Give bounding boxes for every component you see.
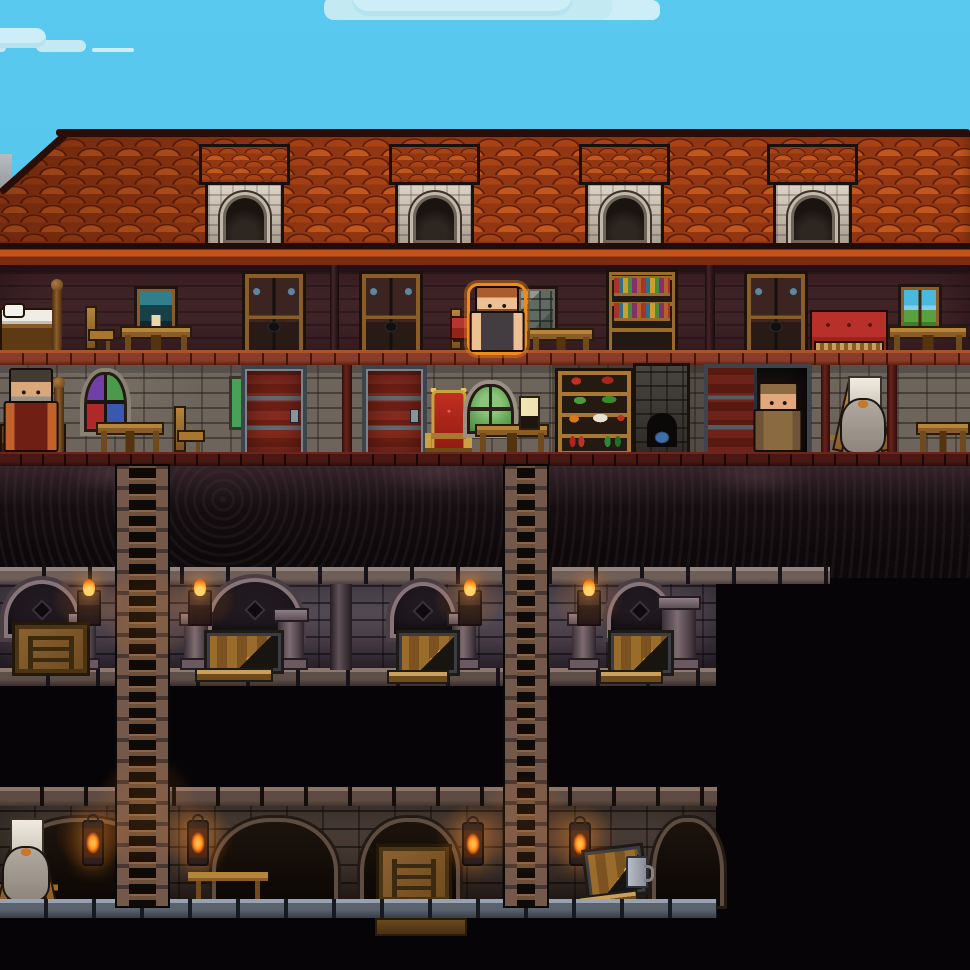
post-ground-2 bbox=[821, 365, 830, 452]
hatch-below-floor bbox=[375, 918, 467, 936]
floor-band-upper bbox=[0, 350, 970, 365]
chair-ground-1[interactable] bbox=[174, 406, 205, 452]
torch-2[interactable] bbox=[188, 590, 212, 626]
chest-1[interactable] bbox=[204, 630, 284, 674]
torch-4[interactable] bbox=[577, 590, 601, 626]
dormer-window-3 bbox=[585, 180, 664, 249]
post-ground-1 bbox=[342, 365, 352, 452]
mug[interactable] bbox=[626, 856, 648, 888]
game-world-view bbox=[0, 0, 970, 970]
table-upper-2[interactable] bbox=[888, 326, 968, 350]
dwarf-painter[interactable] bbox=[840, 398, 886, 454]
torch-1[interactable] bbox=[77, 590, 101, 626]
table-ground-3[interactable] bbox=[916, 422, 970, 452]
sofa-red[interactable] bbox=[810, 310, 888, 354]
ladder-shaft-1[interactable] bbox=[117, 466, 168, 906]
dormer-window-1 bbox=[205, 180, 284, 249]
dormer-window-2 bbox=[395, 180, 474, 249]
lantern-2[interactable] bbox=[187, 820, 209, 866]
wall-seam-cellar1 bbox=[330, 584, 352, 670]
table-upper-1[interactable] bbox=[120, 326, 192, 350]
ladder-shaft-2[interactable] bbox=[505, 466, 547, 906]
bookshelf-upper[interactable] bbox=[606, 269, 678, 357]
roof-ridge bbox=[56, 129, 970, 136]
bench-upper[interactable] bbox=[528, 328, 594, 350]
dwarf-sleeping[interactable] bbox=[4, 368, 58, 452]
cloud-small-left bbox=[0, 28, 46, 48]
lantern-3[interactable] bbox=[462, 822, 484, 866]
wardrobe-upper-1[interactable] bbox=[242, 271, 306, 357]
throne[interactable] bbox=[425, 388, 472, 452]
chest-2[interactable] bbox=[396, 630, 460, 676]
bed-upper[interactable] bbox=[0, 308, 60, 354]
door-reinforced-2[interactable] bbox=[362, 365, 427, 460]
eave-band bbox=[0, 243, 970, 265]
table-ground-1[interactable] bbox=[96, 422, 164, 452]
door-reinforced-1[interactable] bbox=[241, 365, 307, 460]
alcove-ladder-hatch[interactable] bbox=[376, 844, 452, 904]
candle bbox=[519, 396, 540, 430]
bedpost-upper bbox=[52, 288, 62, 350]
figure-at-easel[interactable] bbox=[2, 846, 50, 902]
pantry-shelf[interactable] bbox=[555, 368, 634, 458]
dwarf-reading[interactable] bbox=[470, 286, 524, 352]
bench-cellar2[interactable] bbox=[188, 872, 268, 900]
cellar2-ceiling bbox=[0, 787, 717, 806]
post-upper-1 bbox=[330, 265, 339, 350]
floor-band-ground bbox=[0, 452, 970, 466]
cloud-top bbox=[352, 0, 572, 16]
post-upper-2 bbox=[705, 265, 715, 350]
furnace[interactable] bbox=[633, 363, 690, 458]
chair-upper-1[interactable] bbox=[85, 306, 115, 350]
arch-opening-4 bbox=[652, 818, 724, 906]
dwarf-hooded[interactable] bbox=[754, 382, 802, 452]
wardrobe-upper-2[interactable] bbox=[359, 271, 423, 357]
dormer-window-4 bbox=[773, 180, 852, 249]
post-ground-3 bbox=[887, 365, 897, 452]
storage-hatch[interactable] bbox=[12, 622, 90, 676]
torch-3[interactable] bbox=[458, 590, 482, 626]
lantern-1[interactable] bbox=[82, 820, 104, 866]
cellar2-floor bbox=[0, 899, 717, 918]
wardrobe-upper-3[interactable] bbox=[744, 271, 808, 357]
chest-3[interactable] bbox=[608, 630, 674, 676]
